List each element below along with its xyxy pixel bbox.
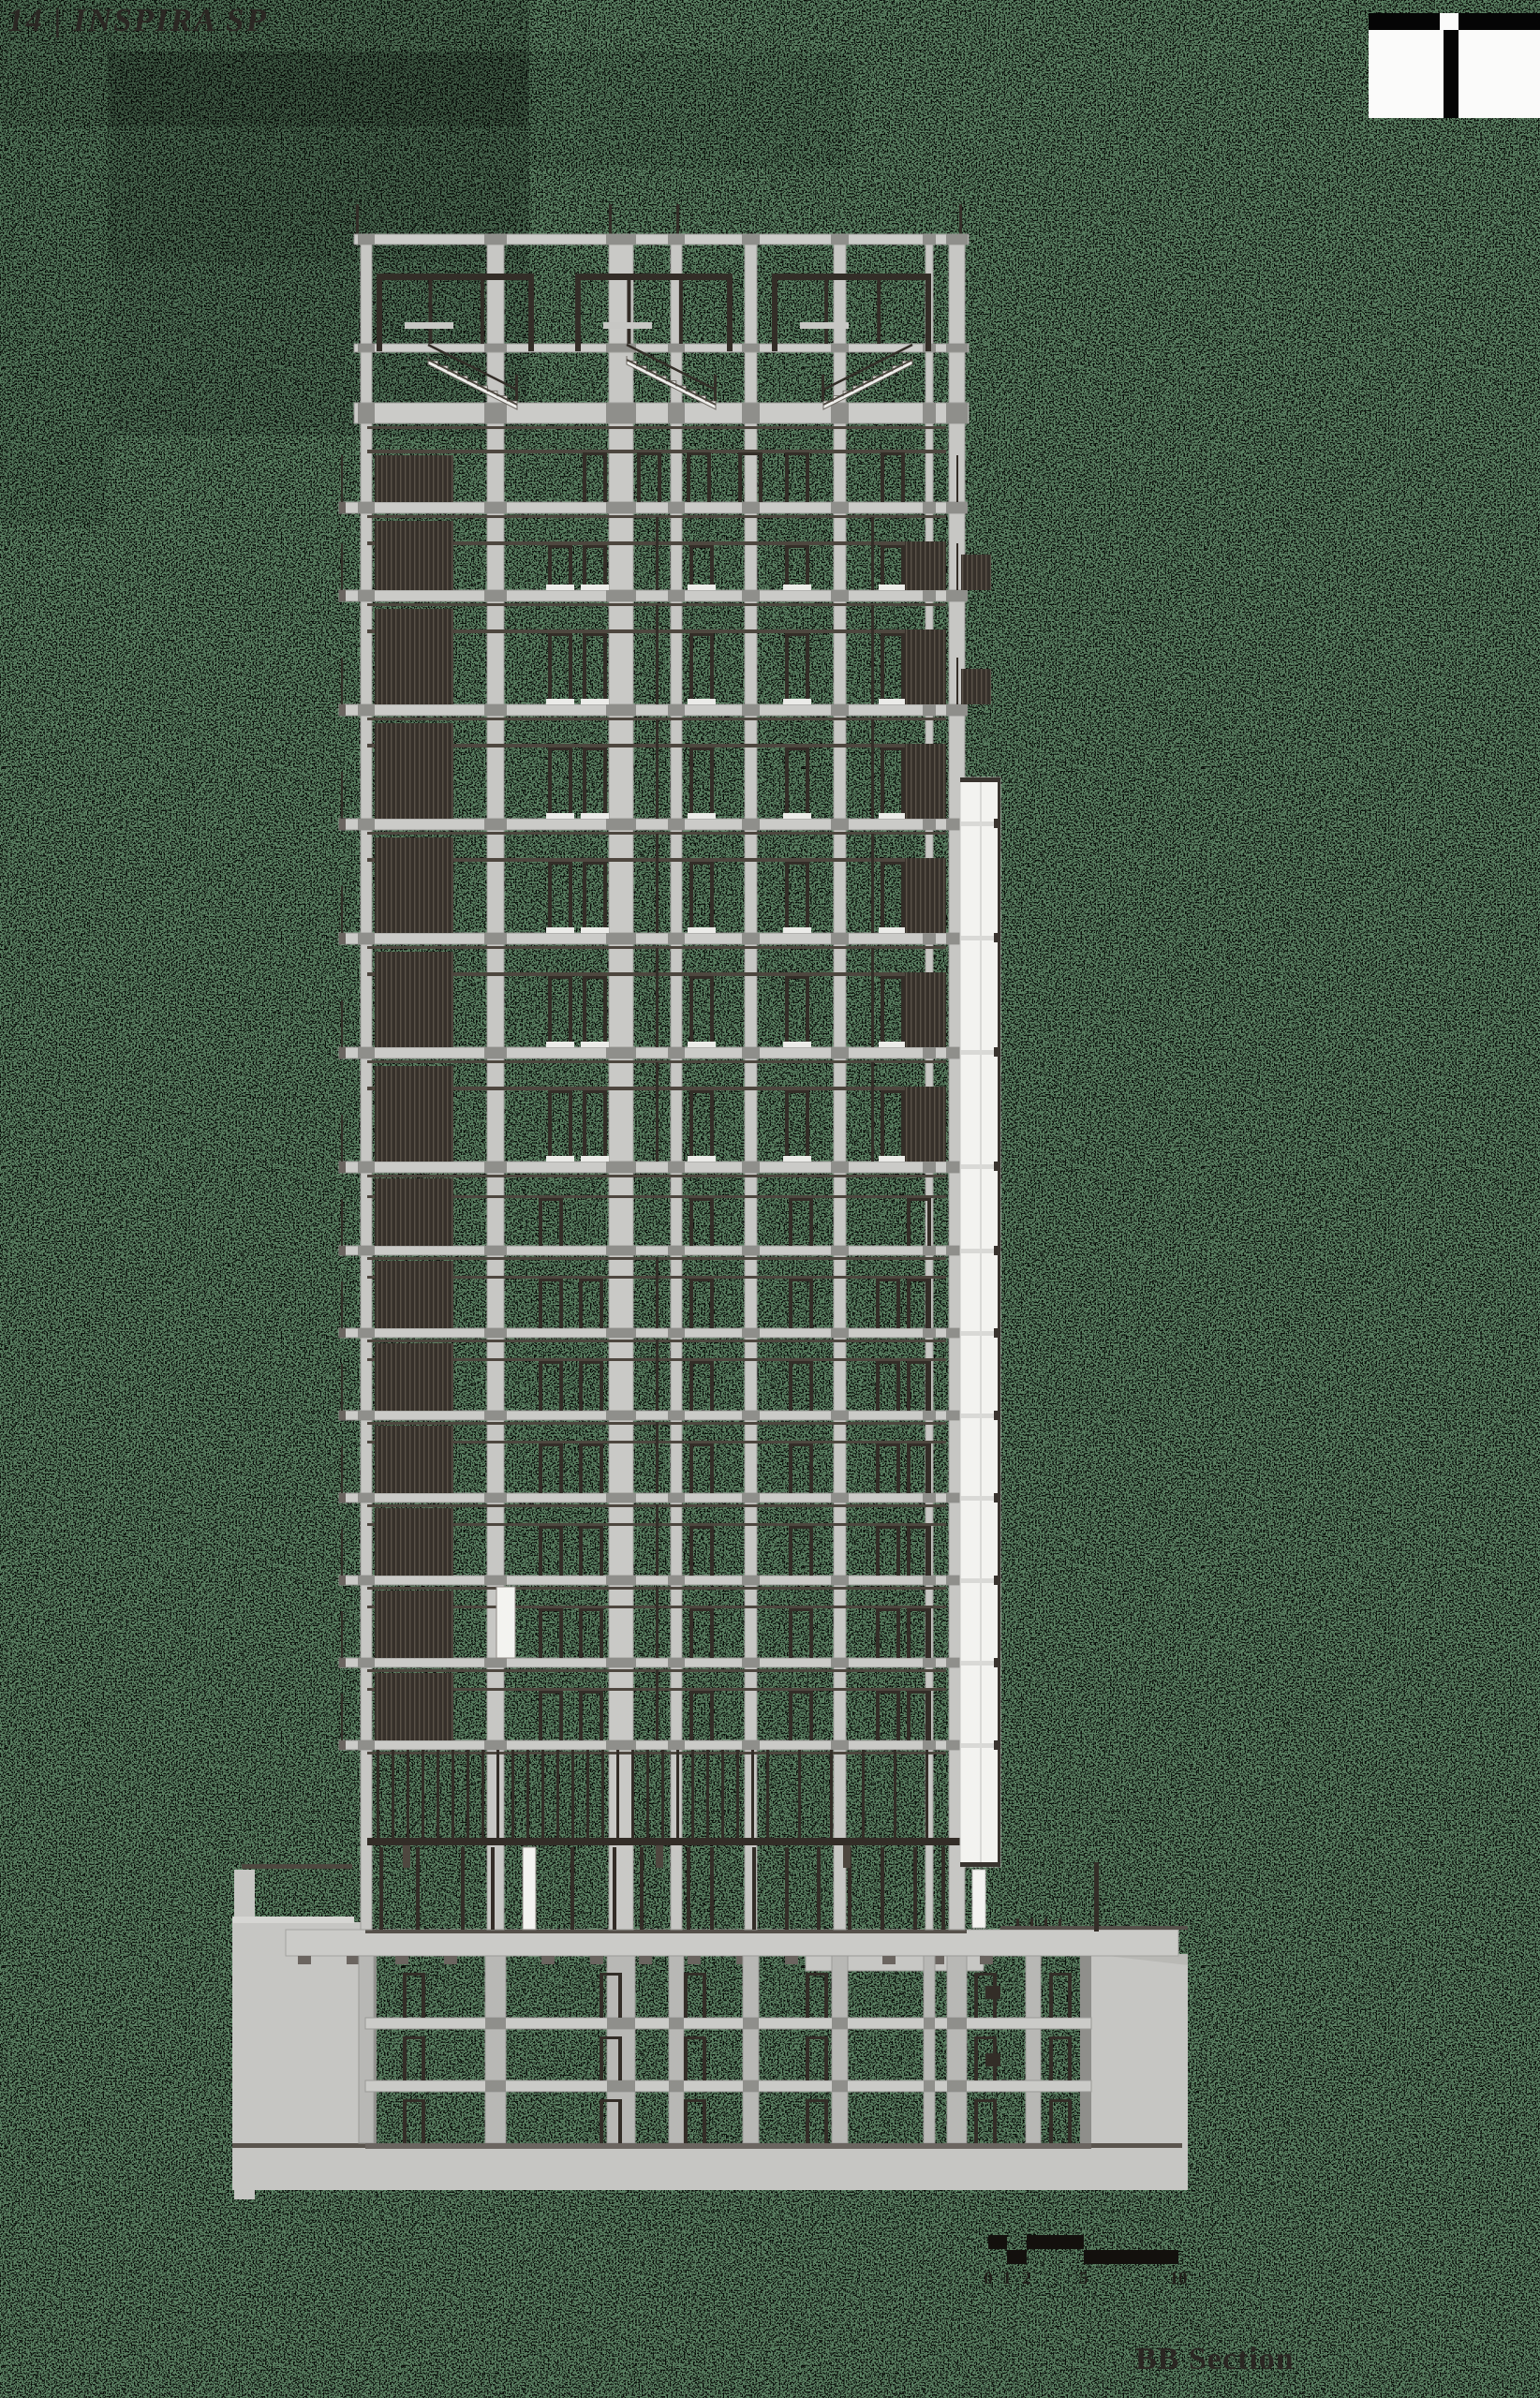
partition [656,1422,659,1493]
scale-bar-block [1084,2250,1178,2264]
door-frame [806,2036,809,2080]
window-head [789,1608,813,1611]
storefront-mullion [491,1847,495,1930]
slab-joint [358,590,375,601]
logo-vertical-bar [1444,30,1459,118]
door-frame [1068,1973,1072,2018]
slab-left-nub [339,1658,346,1667]
slab-joint [923,1328,936,1338]
slab-joint [484,819,507,830]
podium-joist [347,1956,360,1964]
floor-slab [339,819,967,830]
crown-box-top [772,274,931,280]
shaft-floor-nub [994,1493,1000,1502]
window-frame [789,1279,792,1328]
slab-joint [668,1740,685,1750]
slab-joint [742,344,760,352]
dense-mullion [661,1750,664,1838]
slab-joint [358,704,375,716]
window-frame [539,1279,542,1328]
door-frame [974,2036,978,2080]
shaft-bottom-cap [960,1862,1000,1867]
slab-joint [923,1411,936,1420]
window-frame [738,452,742,502]
slab-joint [358,234,375,244]
dense-mullion [736,1750,739,1838]
window-head [539,1361,563,1364]
window-frame [896,1526,900,1576]
window-frame [689,1361,693,1411]
sill-nub [546,1042,574,1047]
window-frame [583,1090,586,1162]
door-frame [703,2099,706,2143]
slab-joint [831,344,849,352]
door-frame [703,1973,706,2018]
door-frame-head [806,2036,828,2039]
dense-mullion [798,1750,801,1838]
crown-box-post [772,274,777,351]
slab-joint [831,1047,849,1058]
slab-joint [831,704,849,716]
window-head [789,1443,813,1446]
dense-mullion [511,1750,514,1838]
railing-post-right [956,658,958,704]
window-frame [876,1526,880,1576]
slab-joint [484,590,507,601]
window-head [548,976,572,979]
white-door [523,1847,536,1930]
slab-joint [485,2080,506,2092]
slab-joint [742,1493,760,1502]
window-frame [881,633,884,704]
slab-joint [606,933,636,944]
window-frame [785,545,789,590]
window-head [785,633,809,636]
slab-left-nub [339,1740,346,1750]
dense-mullion [541,1750,544,1838]
window-frame [785,748,789,819]
basement-column [1026,1956,1041,2143]
window-frame [689,633,693,704]
scale-label: 1 [1002,2269,1012,2289]
window-frame [689,1608,693,1658]
slab-left-nub [339,1576,346,1585]
window-head [689,1443,714,1446]
basement-column [743,1956,759,2143]
window-head [579,1361,603,1364]
window-frame [603,1090,607,1162]
slab-joint [668,933,685,944]
window-frame [603,976,607,1047]
storefront-mullion [817,1847,821,1930]
shaft-floor-line [960,1661,998,1665]
window-frame [907,1361,911,1411]
window-head [583,633,607,636]
railing-post-right [956,543,958,590]
dense-mullion [830,1750,833,1838]
window-frame [539,1691,542,1740]
shaft-top-cap [960,777,1000,782]
scale-bar-block [1027,2235,1084,2249]
window-head [548,862,572,865]
door-frame-head [600,2036,622,2039]
dense-mullion [631,1750,634,1838]
podium-joist [541,1956,555,1964]
dense-mullion [691,1750,694,1838]
partition [656,1257,659,1328]
podium-joist [590,1956,603,1964]
slab-joint [606,1493,636,1502]
door-frame [824,1973,828,2018]
slab-joint [484,704,507,716]
podium-joist [298,1956,311,1964]
dense-mullion [466,1750,469,1838]
slab-joint [358,1328,375,1338]
window-frame [603,862,607,933]
window-head [539,1526,563,1529]
window-head [583,1090,607,1093]
railing-post-left [341,455,343,502]
railing-post-left [341,1000,343,1047]
window-frame [896,1608,900,1658]
railing-post-left [341,1199,343,1246]
window-frame [710,748,714,819]
sill-nub [879,1156,907,1162]
slab-joint [946,403,968,423]
partition [871,948,874,1047]
window-frame [809,1198,813,1246]
slab-joint [832,2018,848,2029]
window-head [881,545,905,548]
louver-block [375,1508,453,1576]
railing-post-left [341,543,343,590]
partition [656,719,659,819]
slab-joint [358,1658,375,1667]
louver-block [375,609,453,704]
partition [871,719,874,819]
partition [871,1062,874,1162]
shaft-floor-nub [994,1576,1000,1585]
door-frame [1068,2099,1072,2143]
dense-mullion [706,1750,709,1838]
sill-nub [783,927,811,933]
partition [656,948,659,1047]
basement-column [832,1956,848,2143]
window-head [689,1608,714,1611]
window-frame [876,1608,880,1658]
window-frame [901,545,905,590]
window-head [785,748,809,750]
slab-joint [923,1658,936,1667]
shaft-floor-nub [994,933,1000,942]
partition [871,834,874,933]
floor-slab [339,1411,967,1420]
slab-joint [606,403,636,423]
slab-joint [924,2080,935,2092]
louver-block [905,972,946,1047]
window-frame [548,976,552,1047]
storefront-mullion [752,1847,756,1930]
shaft-ground-strip [972,1870,985,1928]
slab-joint [606,590,636,601]
window-head [539,1279,563,1281]
slab-joint [606,1162,636,1173]
slab-joint [484,1493,507,1502]
slab-joint [484,1411,507,1420]
scale-label: 0 [984,2269,993,2289]
basement-column [924,1956,935,2143]
ground-line-left [232,1917,354,1923]
window-frame [759,452,763,502]
slab-joint [606,1047,636,1058]
figure-caption: BB Section [1135,2342,1295,2377]
slab-joint [742,704,760,716]
window-frame [548,862,552,933]
door-frame [1049,2036,1053,2080]
crown-box-inner-post [824,280,828,344]
slab-joint [668,1493,685,1502]
sill-nub [546,813,574,819]
floor-slab [339,1246,967,1255]
slab-left-nub [339,1493,346,1502]
dense-mullion [422,1750,424,1838]
slab-joint [923,1740,936,1750]
window-frame [569,748,572,819]
window-frame [710,633,714,704]
window-frame [569,976,572,1047]
slab-joint [742,234,760,244]
window-frame [579,1526,583,1576]
window-frame [539,1361,542,1411]
window-head [583,545,607,548]
crown-box-post [925,274,931,351]
podium-top-line [365,1930,967,1933]
slab-joint [742,590,760,601]
slab-joint [606,502,636,513]
window-frame [539,1198,542,1246]
equipment-box [985,1986,1000,1999]
window-head [583,976,607,979]
window-head [876,1526,900,1529]
shaft-floor-line [960,1743,998,1748]
door-frame [618,1973,622,2018]
window-head [579,1279,603,1281]
crown-post [609,352,633,403]
stair-newel [714,375,717,401]
slab-joint [606,1658,636,1667]
slab-joint [484,1658,507,1667]
louver-block [375,1066,453,1162]
window-frame [710,1608,714,1658]
dense-mullion [721,1750,724,1838]
shaft-floor-line [960,1249,998,1253]
slab-joint [606,704,636,716]
shaft-floor-nub [994,1162,1000,1171]
slab-joint [742,1047,760,1058]
door-frame [403,1973,407,2018]
slab-joint [668,234,685,244]
window-frame [600,1526,603,1576]
window-frame [925,1608,929,1658]
shaft-floor-nub [994,1246,1000,1255]
logo-bar-gap [1440,13,1459,30]
window-frame [539,1443,542,1493]
slab-joint [484,1162,507,1173]
ceiling-line [367,1175,946,1177]
sill-nub [783,699,811,704]
window-frame [785,862,789,933]
window-frame [539,1526,542,1576]
partition [656,1062,659,1162]
window-head [579,1526,603,1529]
slab-joint [606,234,636,244]
shaft-floor-line [960,936,998,940]
window-frame [881,545,884,590]
floor-slab [339,1162,967,1173]
podium-joist [785,1956,798,1964]
window-head [548,1090,572,1093]
window-frame [569,633,572,704]
dense-mullion [751,1750,754,1838]
window-frame [600,1608,603,1658]
slab-joint [946,502,968,513]
dense-mullion [676,1750,679,1838]
window-frame [600,1691,603,1740]
floor-slab [339,1658,967,1667]
sill-nub [688,585,716,590]
sill-nub [688,1156,716,1162]
window-head [689,1361,714,1364]
floor-slab [339,1328,967,1338]
window-head [539,1443,563,1446]
balcony-railing [961,669,991,704]
window-frame [583,633,586,704]
shaft-floor-line [960,1496,998,1501]
basement-slab [365,2080,1091,2092]
window-frame [658,452,661,502]
sill-nub [879,1042,907,1047]
slab-joint [484,933,507,944]
slab-joint [831,403,849,423]
window-frame [710,1198,714,1246]
window-frame [707,452,711,502]
window-frame [710,1443,714,1493]
sill-nub [783,585,811,590]
window-head [583,862,607,865]
window-frame [579,1443,583,1493]
slab-joint [947,2080,967,2092]
podium-joist [882,1956,896,1964]
slab-joint [946,344,968,352]
window-frame [600,1443,603,1493]
slab-joint [742,933,760,944]
parapet-post [609,204,612,234]
window-head [785,545,809,548]
partition [656,834,659,933]
window-head [881,748,905,750]
floor-slab [339,1493,967,1502]
window-frame [579,1608,583,1658]
window-head [689,545,714,548]
crown-post [949,352,965,403]
sill-nub [546,585,574,590]
partition [656,605,659,704]
slab-joint [607,2018,635,2029]
shaft-floor-line [960,1331,998,1336]
slab-joint [831,1493,849,1502]
ceiling-line [367,426,946,429]
dense-mullion [452,1750,454,1838]
crown-box-inner-post [428,280,432,344]
storefront-mullion [710,1847,714,1930]
slab-joint [946,234,968,244]
slab-left-nub [339,1246,346,1255]
window-frame [637,452,641,502]
door-frame [1049,2099,1053,2143]
window-head [579,1608,603,1611]
window-frame [689,1526,693,1576]
wall-stub [403,1845,410,1868]
wall-stub [656,1845,663,1868]
slab-joint [484,1328,507,1338]
floor-slab [339,590,967,601]
window-frame [809,1361,813,1411]
door-frame [974,1973,978,2018]
basement-column [359,1956,374,2143]
slab-joint [831,234,849,244]
dense-mullion [392,1750,394,1838]
window-frame [881,748,884,819]
sill-nub [879,585,907,590]
window-head [539,1691,563,1694]
crown-post [925,352,933,403]
crown-box-top [377,274,534,280]
door-frame-head [600,1973,622,1976]
window-frame [901,1090,905,1162]
crown-box-post [377,274,382,351]
window-head [876,1691,900,1694]
crown-box-top [575,274,733,280]
sill-nub [688,1042,716,1047]
slab-joint [606,1740,636,1750]
door-frame [618,2099,622,2143]
window-frame [806,976,809,1047]
window-frame [583,545,586,590]
dense-mullion [377,1750,379,1838]
window-frame [548,633,552,704]
dense-mullion [862,1750,865,1838]
window-frame [896,1279,900,1328]
basement-wall-right [1080,1956,1091,2143]
window-head [876,1443,900,1446]
foundation-mat [232,2143,1182,2190]
podium-joist [688,1956,701,1964]
window-frame [569,862,572,933]
partition [656,1669,659,1740]
elevator-shaft [960,777,1000,1867]
dense-mullion [571,1750,574,1838]
window-frame [806,633,809,704]
window-head [583,452,607,455]
window-head [789,1279,813,1281]
louver-block [375,1178,453,1246]
slab-left-nub [339,1411,346,1420]
partition [871,517,874,590]
louver-block [375,837,453,933]
storefront-mullion [613,1847,616,1930]
window-frame [583,976,586,1047]
window-head [738,452,763,455]
